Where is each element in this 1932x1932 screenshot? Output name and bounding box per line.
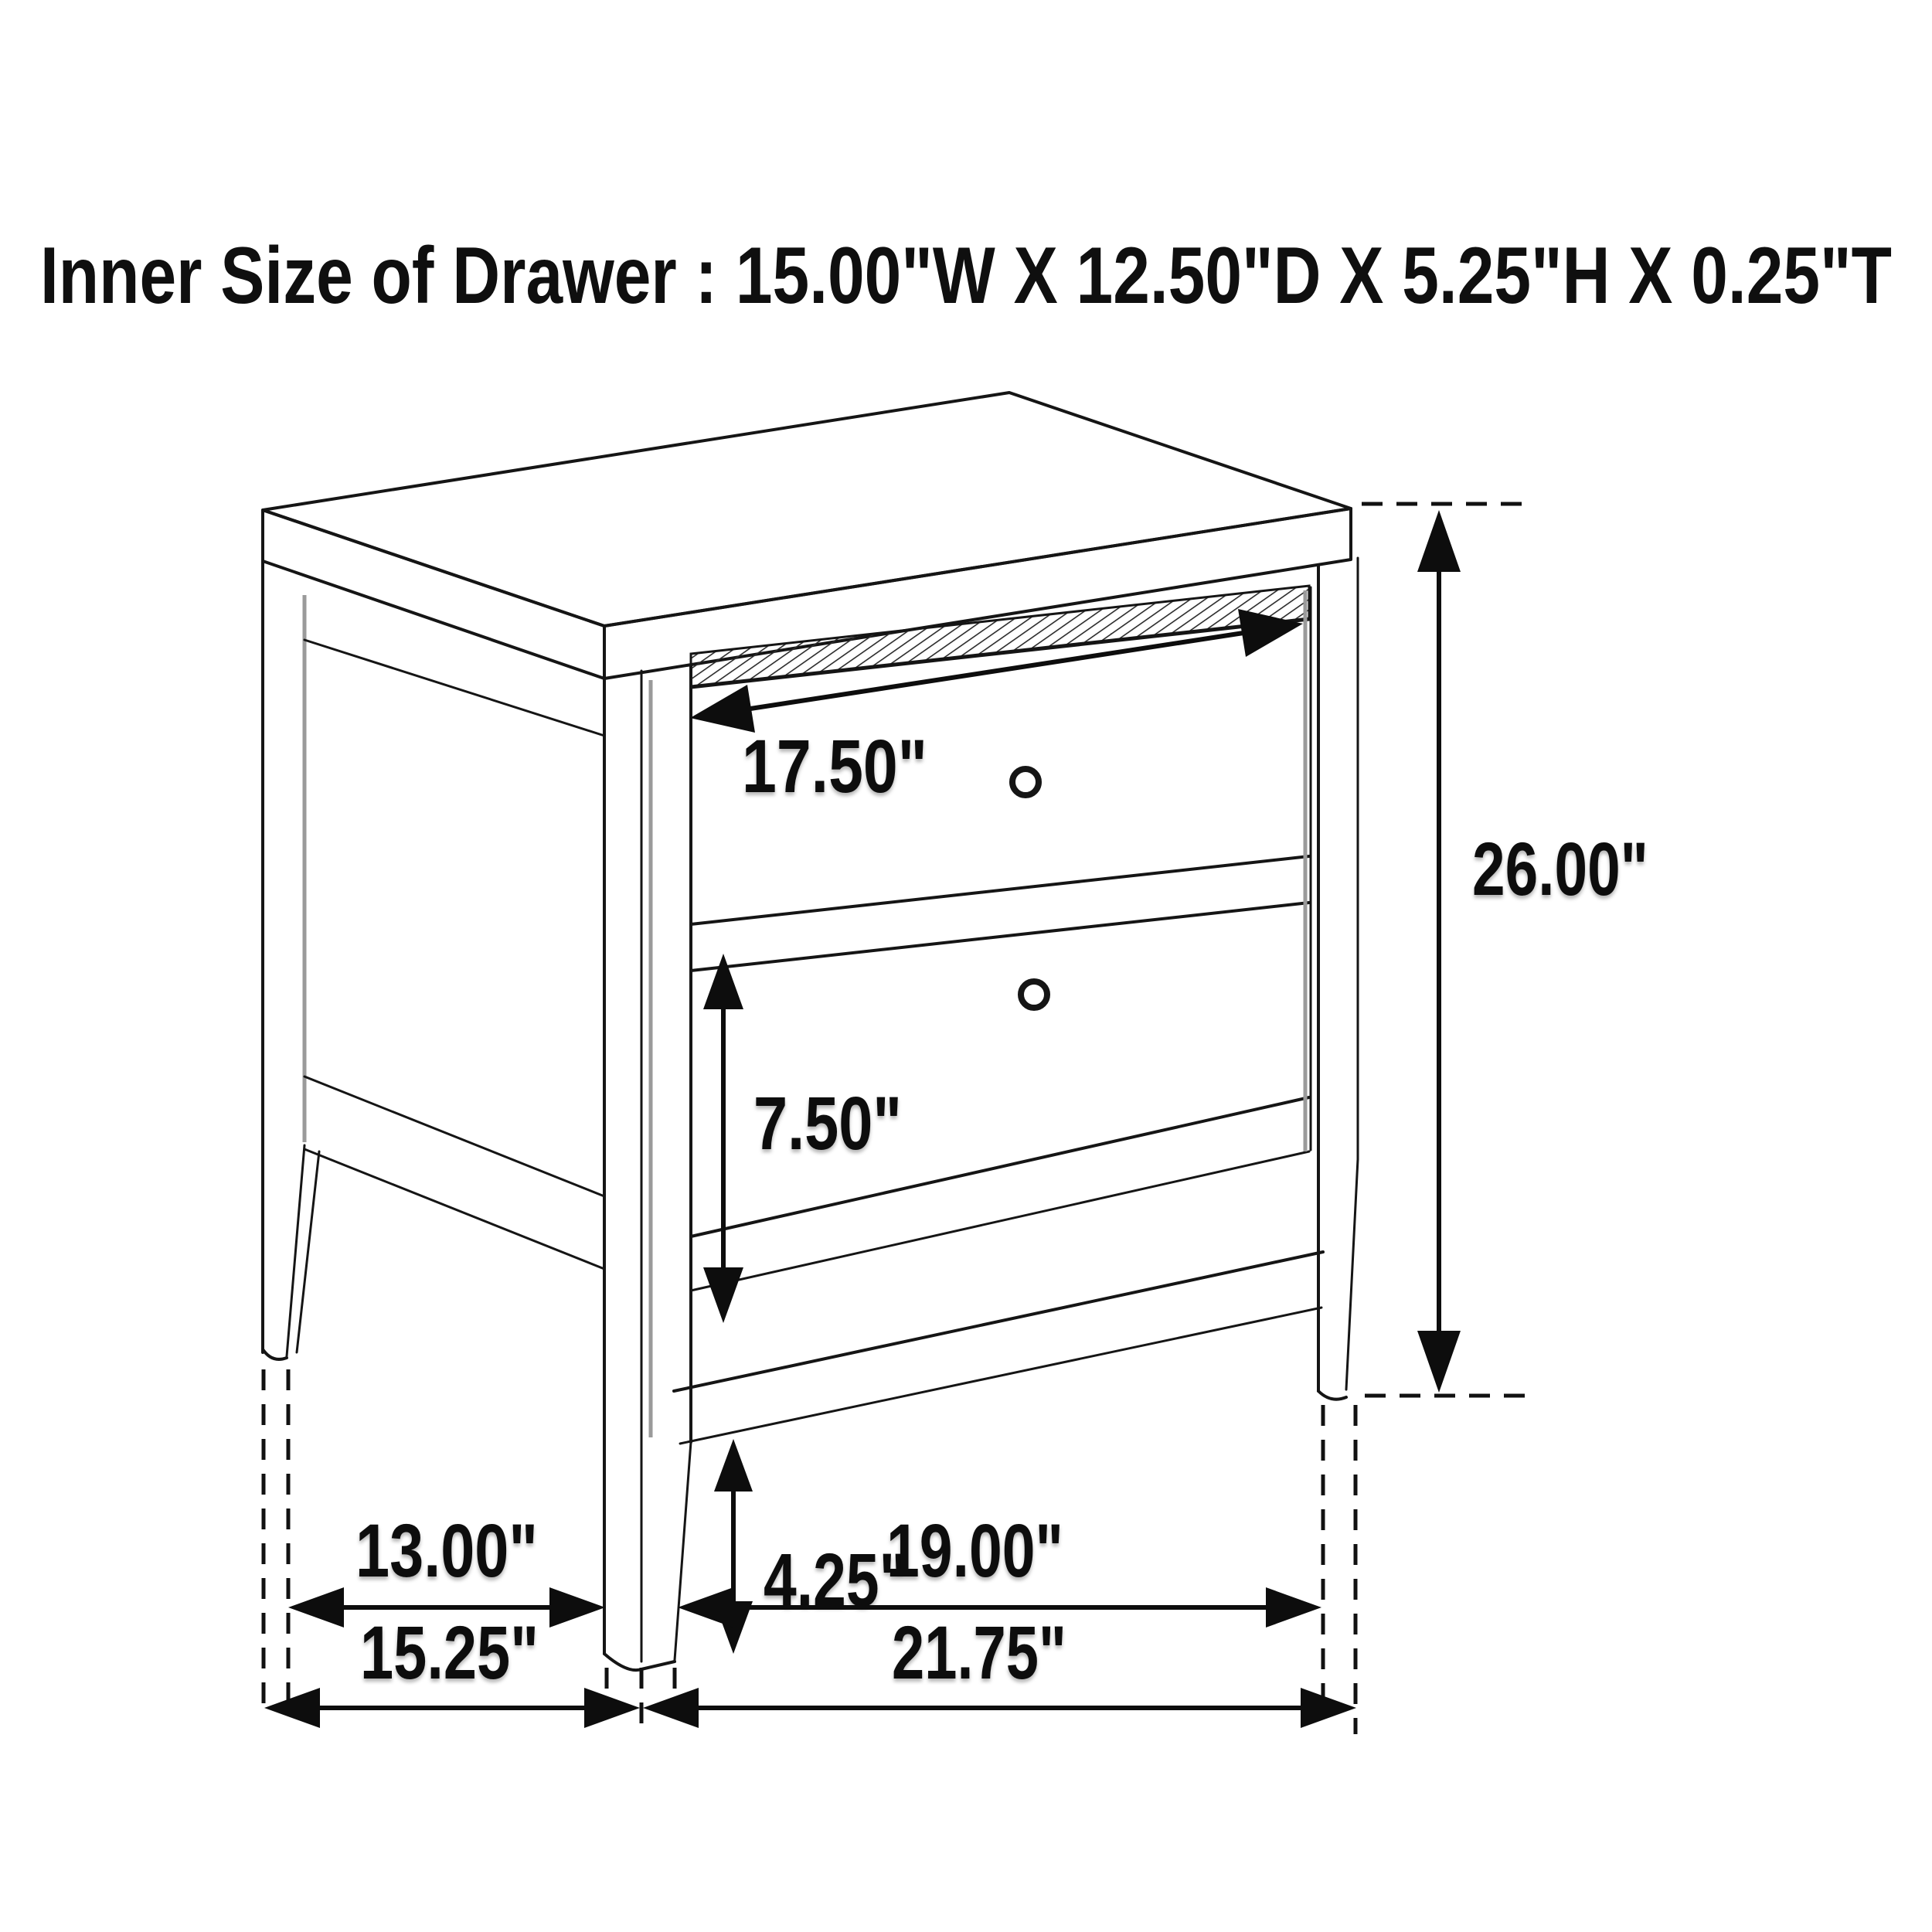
diagram-page: Inner Size of Drawer : 15.00"W X 12.50"D… [0,0,1932,1932]
front-left-leg-foot [604,1654,675,1670]
front-left-leg-taper [675,1442,691,1660]
dim-label-side-leg-spacing: 13.00" [355,1509,538,1593]
back-left-leg-taper [287,1145,304,1356]
back-left-leg-foot [263,1349,287,1359]
top-slab-left-face [263,510,604,679]
apron-bottom-edge [691,1151,1309,1291]
side-apron-top-edge [304,1077,604,1196]
dim-label-drawer-width: 17.50" [742,724,927,808]
nightstand-dimension-diagram: Inner Size of Drawer : 15.00"W X 12.50"D… [0,0,1932,1932]
front-left-leg [604,665,691,1670]
dim-label-overall-height: 26.00" [1472,827,1648,911]
dim-label-overall-width: 21.75" [892,1611,1066,1695]
top-slab [263,393,1351,679]
back-left-leg-corner [297,1151,319,1352]
top-face [263,393,1351,626]
top-drawer-knob-icon [1012,769,1039,795]
stretcher-bottom-edge [680,1308,1321,1444]
bottom-drawer-knob-icon [1021,981,1047,1008]
front-right-leg-foot [1318,1391,1346,1400]
front-right-leg-taper [1346,1159,1358,1389]
dim-arrow-26-00 [1417,510,1461,1393]
side-apron-bottom-edge [304,1149,604,1269]
dim-label-front-leg-spacing: 19.00" [886,1509,1063,1593]
front-right-leg [1318,558,1358,1400]
page-title: Inner Size of Drawer : 15.00"W X 12.50"D… [40,231,1892,321]
back-left-leg [263,1145,319,1359]
dim-arrow-7-50 [703,954,743,1323]
dim-label-bottom-drawer-height: 7.50" [753,1081,902,1165]
dim-label-overall-depth: 15.25" [360,1611,539,1695]
front-face [674,586,1323,1444]
left-side-panel [263,561,604,1352]
side-top-rail-edge [304,640,604,736]
